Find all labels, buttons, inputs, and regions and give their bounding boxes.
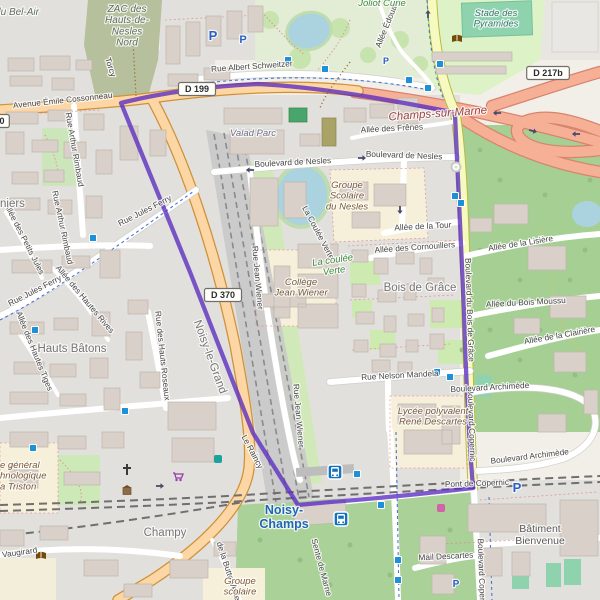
bus-stop-icon (406, 77, 413, 84)
place-label: Groupescolaire (224, 576, 257, 598)
bus-stop-icon (447, 374, 454, 381)
route-shield: 0 (0, 115, 9, 128)
bus-stop-icon (437, 61, 444, 68)
bus-stop-icon (395, 557, 402, 564)
svg-text:0: 0 (0, 116, 5, 126)
map-canvas[interactable]: PPPPP Avenue Émile CossonneauRue Albert … (0, 0, 600, 600)
parking-icon: P (209, 28, 218, 43)
place-label: Hauts Bâtons (37, 343, 106, 355)
bus-stop-icon (322, 66, 329, 73)
place-label: Stade desPyramides (474, 8, 519, 30)
place-label: niers (0, 198, 25, 210)
bus-station-icon (328, 465, 342, 479)
bus-stop-icon (452, 193, 459, 200)
route-shield: D 370 (205, 289, 242, 302)
place-label: GroupeScolairedu Nesles (326, 180, 368, 212)
parking-icon: P (239, 34, 246, 46)
parking-icon: P (513, 480, 522, 495)
place-label: du Bel-Air (0, 7, 40, 18)
place-label: BâtimentBienvenue (515, 523, 565, 547)
road-label: Boulevard Copernic (476, 538, 489, 600)
bus-stop-icon (354, 471, 361, 478)
svg-text:D 199: D 199 (185, 84, 209, 94)
route-shield: D 217b (527, 67, 570, 80)
bus-station-icon (334, 512, 348, 526)
bus-stop-icon (122, 408, 129, 415)
place-label: Noisy-Champs (259, 503, 308, 531)
bus-stop-icon (458, 200, 465, 207)
bus-stop-icon (90, 235, 97, 242)
svg-text:D 370: D 370 (211, 290, 235, 300)
recycle-teal-icon (214, 455, 222, 463)
parking-icon: P (453, 579, 460, 590)
svg-text:D 217b: D 217b (533, 68, 563, 78)
route-shield: D 199 (179, 83, 216, 96)
mini-roundabout (452, 163, 461, 172)
osm-map: PPPPP Avenue Émile CossonneauRue Albert … (0, 0, 600, 600)
bus-stop-icon (395, 577, 402, 584)
parking-icon: P (383, 56, 389, 66)
place-label: Valad Parc (230, 128, 276, 139)
shop-pink-icon (437, 504, 445, 512)
place-label: Joliot Curie (357, 0, 406, 9)
bus-stop-icon (425, 85, 432, 92)
bus-stop-icon (30, 445, 37, 452)
bus-stop-icon (378, 502, 385, 509)
place-label: Lycée polyvalentRené Descartes (398, 406, 469, 428)
library-icon (452, 35, 462, 42)
place-label: Bois de Grâce (384, 282, 457, 294)
place-label: Champy (144, 527, 187, 539)
